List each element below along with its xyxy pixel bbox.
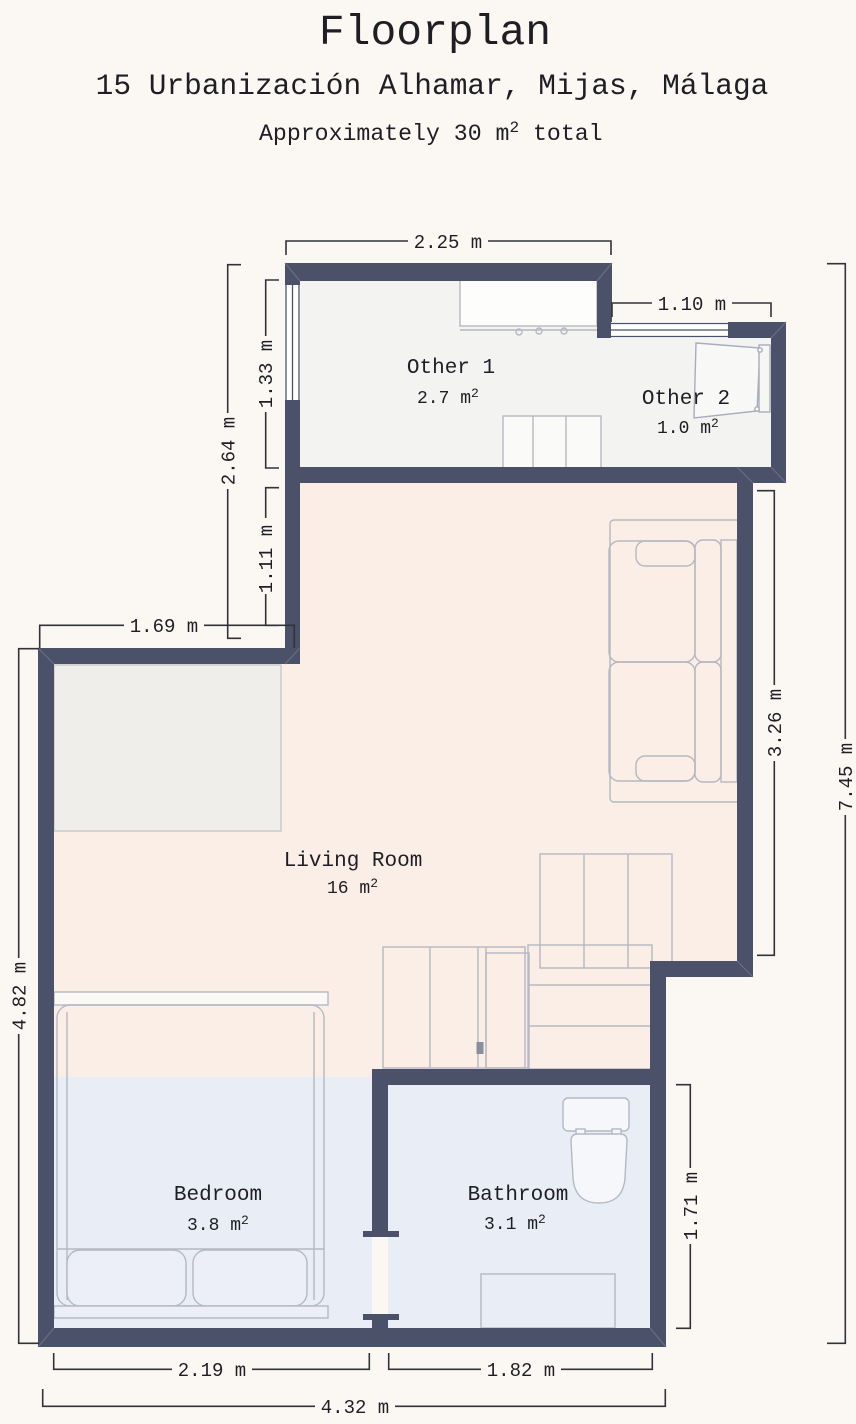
svg-text:15 Urbanización Alhamar, Mijas: 15 Urbanización Alhamar, Mijas, Málaga: [96, 69, 769, 103]
svg-text:2.25 m: 2.25 m: [414, 232, 482, 254]
svg-text:4.82 m: 4.82 m: [10, 962, 32, 1030]
svg-text:Other 2: Other 2: [642, 388, 730, 411]
svg-text:2.64 m: 2.64 m: [219, 417, 241, 485]
svg-text:Floorplan: Floorplan: [319, 8, 551, 57]
svg-text:1.69 m: 1.69 m: [130, 616, 198, 638]
svg-text:3.8 m2: 3.8 m2: [187, 1213, 249, 1236]
svg-text:4.32 m: 4.32 m: [321, 1397, 389, 1419]
svg-text:1.71 m: 1.71 m: [681, 1172, 703, 1240]
svg-text:Other 1: Other 1: [407, 357, 495, 380]
svg-text:Bathroom: Bathroom: [468, 1184, 569, 1207]
svg-text:1.11 m: 1.11 m: [256, 525, 278, 593]
svg-text:Bedroom: Bedroom: [174, 1184, 262, 1207]
svg-text:1.82 m: 1.82 m: [487, 1360, 555, 1382]
svg-text:3.1 m2: 3.1 m2: [484, 1212, 546, 1235]
svg-text:Approximately 30 m2 total: Approximately 30 m2 total: [259, 119, 603, 147]
svg-text:7.45 m: 7.45 m: [836, 743, 856, 811]
svg-text:1.0 m2: 1.0 m2: [657, 416, 719, 439]
svg-text:1.10 m: 1.10 m: [658, 294, 726, 316]
svg-text:2.19 m: 2.19 m: [178, 1360, 246, 1382]
svg-text:Living Room: Living Room: [284, 850, 423, 873]
svg-text:1.33 m: 1.33 m: [256, 340, 278, 408]
svg-text:3.26 m: 3.26 m: [765, 689, 787, 757]
svg-text:2.7 m2: 2.7 m2: [417, 386, 479, 409]
